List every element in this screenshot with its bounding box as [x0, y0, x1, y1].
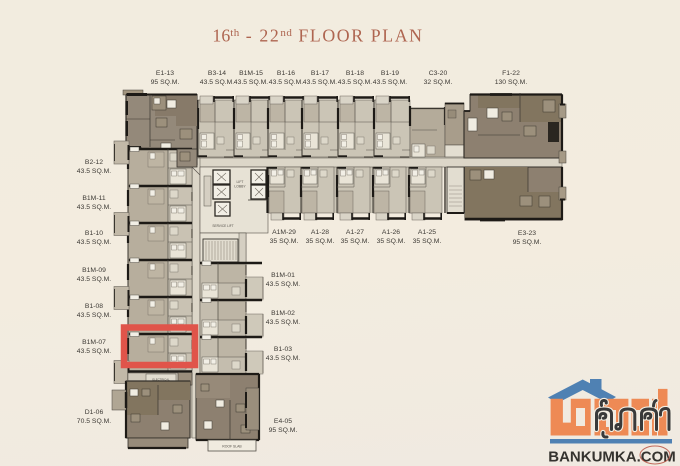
svg-text:95 SQ.M.: 95 SQ.M.: [269, 427, 298, 434]
svg-text:43.5 SQ.M.: 43.5 SQ.M.: [77, 276, 111, 283]
svg-text:43.5 SQ.M.: 43.5 SQ.M.: [77, 204, 111, 211]
svg-text:C3-20: C3-20: [429, 70, 448, 77]
svg-text:43.5 SQ.M.: 43.5 SQ.M.: [266, 355, 300, 362]
svg-text:E4-05: E4-05: [274, 418, 292, 425]
svg-text:70.5 SQ.M.: 70.5 SQ.M.: [77, 418, 111, 425]
svg-text:B1-03: B1-03: [274, 346, 292, 353]
svg-text:B1M-01: B1M-01: [271, 272, 295, 279]
svg-text:43.5 SQ.M.: 43.5 SQ.M.: [338, 79, 372, 86]
svg-text:LIFT: LIFT: [237, 180, 244, 184]
svg-text:B1-17: B1-17: [311, 70, 329, 77]
svg-text:B1M-02: B1M-02: [271, 310, 295, 317]
svg-text:16th - 22nd FLOOR PLAN: 16th - 22nd FLOOR PLAN: [212, 26, 423, 46]
svg-text:43.5 SQ.M.: 43.5 SQ.M.: [77, 239, 111, 246]
svg-text:43.5 SQ.M.: 43.5 SQ.M.: [200, 79, 234, 86]
svg-text:B1M-11: B1M-11: [82, 195, 106, 202]
svg-text:35 SQ.M.: 35 SQ.M.: [270, 238, 299, 245]
svg-text:B1-18: B1-18: [346, 70, 364, 77]
svg-text:A1M-29: A1M-29: [272, 229, 296, 236]
svg-text:43.5 SQ.M.: 43.5 SQ.M.: [234, 79, 268, 86]
svg-text:A1-27: A1-27: [346, 229, 364, 236]
svg-text:43.5 SQ.M.: 43.5 SQ.M.: [266, 281, 300, 288]
svg-text:43.5 SQ.M.: 43.5 SQ.M.: [266, 319, 300, 326]
svg-text:F1-22: F1-22: [502, 70, 520, 77]
svg-text:B1-16: B1-16: [277, 70, 295, 77]
svg-text:43.5 SQ.M.: 43.5 SQ.M.: [77, 348, 111, 355]
svg-text:D1-06: D1-06: [85, 409, 104, 416]
svg-text:B1M-15: B1M-15: [239, 70, 263, 77]
svg-text:B2-12: B2-12: [85, 159, 103, 166]
svg-text:35 SQ.M.: 35 SQ.M.: [377, 238, 406, 245]
svg-text:E3-23: E3-23: [518, 230, 536, 237]
svg-text:SERVICE LIFT: SERVICE LIFT: [212, 224, 233, 228]
svg-text:43.5 SQ.M.: 43.5 SQ.M.: [269, 79, 303, 86]
svg-text:35 SQ.M.: 35 SQ.M.: [306, 238, 335, 245]
svg-text:E1-13: E1-13: [156, 70, 174, 77]
svg-text:32 SQ.M.: 32 SQ.M.: [424, 79, 453, 86]
svg-text:ROOF SLAB: ROOF SLAB: [222, 445, 242, 449]
svg-text:LOBBY: LOBBY: [234, 185, 246, 189]
svg-text:130 SQ.M.: 130 SQ.M.: [495, 79, 528, 86]
svg-text:43.5 SQ.M.: 43.5 SQ.M.: [77, 312, 111, 319]
svg-text:B1-08: B1-08: [85, 303, 103, 310]
svg-text:A1-26: A1-26: [382, 229, 400, 236]
svg-text:B1M-07: B1M-07: [82, 339, 106, 346]
svg-text:43.5 SQ.M.: 43.5 SQ.M.: [77, 168, 111, 175]
svg-text:BANKUMKA.COM: BANKUMKA.COM: [548, 449, 676, 466]
svg-text:35 SQ.M.: 35 SQ.M.: [341, 238, 370, 245]
svg-text:43.5 SQ.M.: 43.5 SQ.M.: [373, 79, 407, 86]
svg-text:43.5 SQ.M.: 43.5 SQ.M.: [303, 79, 337, 86]
svg-text:95 SQ.M.: 95 SQ.M.: [151, 79, 180, 86]
svg-text:35 SQ.M.: 35 SQ.M.: [413, 238, 442, 245]
svg-text:B1-10: B1-10: [85, 230, 103, 237]
svg-text:B1M-09: B1M-09: [82, 267, 106, 274]
svg-text:95 SQ.M.: 95 SQ.M.: [513, 239, 542, 246]
svg-text:B3-14: B3-14: [208, 70, 226, 77]
svg-text:A1-28: A1-28: [311, 229, 329, 236]
svg-text:A1-25: A1-25: [418, 229, 436, 236]
svg-text:B1-19: B1-19: [381, 70, 399, 77]
